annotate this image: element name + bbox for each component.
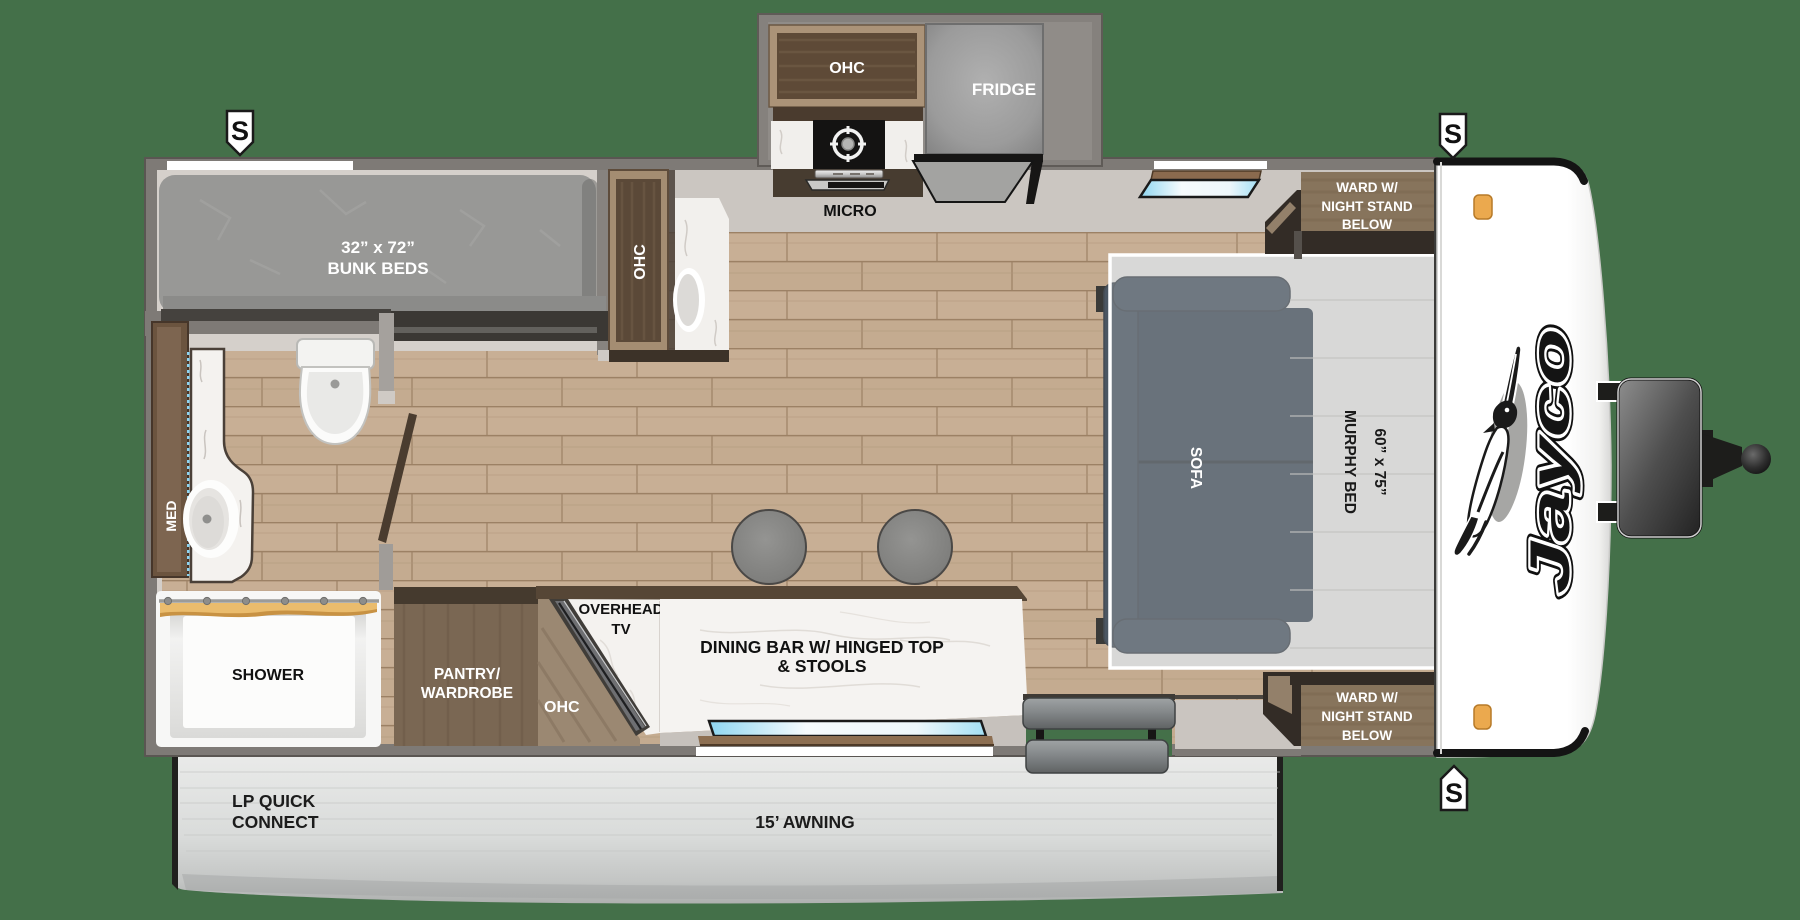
svg-text:OHC: OHC [632,244,649,280]
svg-text:WARDROBE: WARDROBE [421,685,513,702]
svg-text:LP QUICK: LP QUICK [232,791,316,811]
svg-text:WARD W/: WARD W/ [1336,180,1398,195]
svg-text:BELOW: BELOW [1342,728,1393,743]
svg-text:S: S [1445,778,1463,808]
svg-text:FRIDGE: FRIDGE [972,80,1036,99]
svg-text:OHC: OHC [544,699,580,716]
svg-text:NIGHT STAND: NIGHT STAND [1321,709,1412,724]
svg-text:WARD W/: WARD W/ [1336,690,1398,705]
svg-text:OVERHEAD: OVERHEAD [578,601,663,618]
svg-text:DINING BAR W/ HINGED TOP: DINING BAR W/ HINGED TOP [700,637,944,657]
svg-text:SOFA: SOFA [1187,447,1204,489]
svg-text:MICRO: MICRO [823,203,876,220]
svg-text:BELOW: BELOW [1342,217,1393,232]
svg-text:Jayco: Jayco [1518,328,1581,594]
svg-text:TV: TV [611,621,630,638]
svg-text:S: S [1444,119,1462,149]
svg-text:60” x 75”: 60” x 75” [1371,428,1388,495]
svg-text:15’ AWNING: 15’ AWNING [755,812,855,832]
svg-text:MURPHY BED: MURPHY BED [1341,410,1358,514]
svg-text:CONNECT: CONNECT [232,812,319,832]
svg-text:OHC: OHC [829,60,865,77]
svg-text:S: S [231,116,249,146]
svg-text:NIGHT STAND: NIGHT STAND [1321,199,1412,214]
svg-text:SHOWER: SHOWER [232,667,304,684]
svg-text:PANTRY/: PANTRY/ [434,666,501,683]
svg-text:BUNK BEDS: BUNK BEDS [327,259,428,278]
svg-text:MED: MED [163,500,179,531]
svg-text:& STOOLS: & STOOLS [777,656,866,676]
svg-text:32” x 72”: 32” x 72” [341,238,415,257]
